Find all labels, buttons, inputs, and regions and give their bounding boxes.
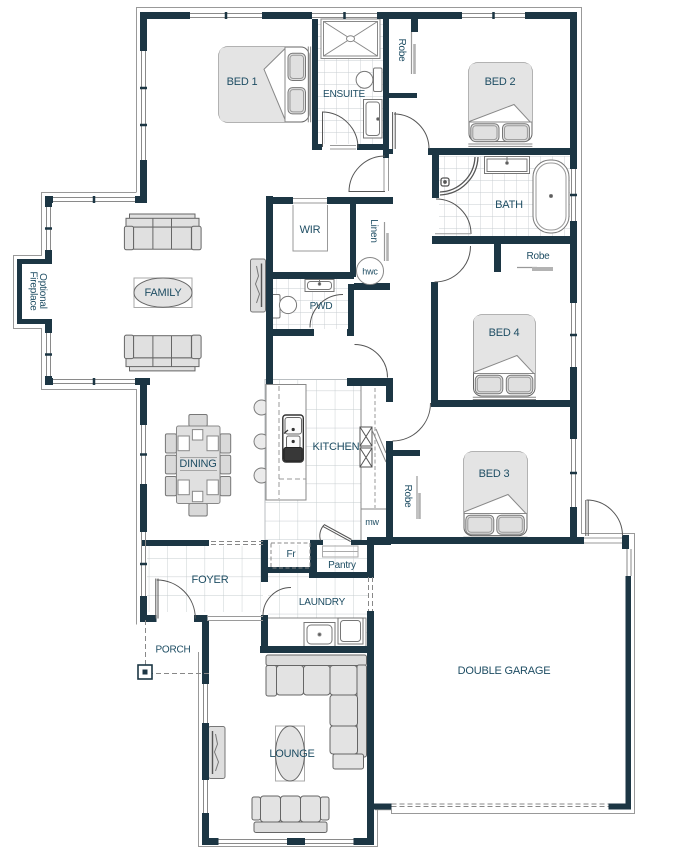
svg-text:KITCHEN: KITCHEN xyxy=(313,441,360,453)
svg-text:BED 3: BED 3 xyxy=(479,468,510,480)
svg-text:WIR: WIR xyxy=(300,224,321,236)
svg-text:LAUNDRY: LAUNDRY xyxy=(299,597,346,608)
svg-text:LOUNGE: LOUNGE xyxy=(269,748,314,760)
svg-text:Robe: Robe xyxy=(396,38,407,62)
svg-text:BED 4: BED 4 xyxy=(489,327,520,339)
svg-text:PWD: PWD xyxy=(310,301,333,312)
svg-text:hwc: hwc xyxy=(362,267,378,277)
svg-text:Linen: Linen xyxy=(368,219,379,242)
svg-text:BED 2: BED 2 xyxy=(485,76,516,88)
svg-text:FAMILY: FAMILY xyxy=(144,287,182,299)
svg-text:PORCH: PORCH xyxy=(155,645,190,656)
svg-text:ENSUITE: ENSUITE xyxy=(323,89,365,100)
svg-text:BATH: BATH xyxy=(495,199,523,211)
svg-text:Robe: Robe xyxy=(526,251,550,262)
svg-text:FOYER: FOYER xyxy=(192,574,229,586)
svg-text:DINING: DINING xyxy=(179,458,216,470)
svg-text:Fr: Fr xyxy=(286,549,296,560)
svg-text:mw: mw xyxy=(365,517,379,527)
svg-text:Pantry: Pantry xyxy=(328,560,356,571)
svg-text:DOUBLE GARAGE: DOUBLE GARAGE xyxy=(458,665,551,677)
svg-text:BED 1: BED 1 xyxy=(227,76,258,88)
svg-text:Robe: Robe xyxy=(402,484,413,508)
svg-text:Fireplace: Fireplace xyxy=(28,271,39,311)
